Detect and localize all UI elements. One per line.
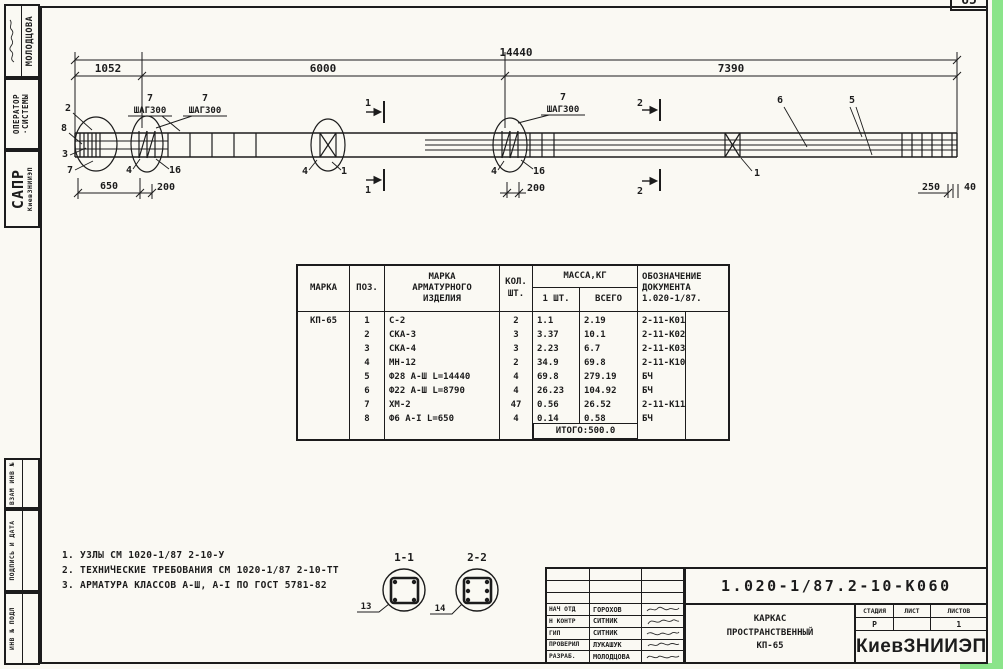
callout-leaders <box>128 115 585 131</box>
signature-squiggle <box>646 652 680 661</box>
col-item: С-2СКА-3 СКА-4МН-12 Ф28 А-Ш L=14440Ф22 А… <box>385 312 500 439</box>
people-row: ГИП СИТНИК <box>547 628 684 640</box>
cut-2-bottom: 2 <box>637 186 643 197</box>
stage-sheet-values: Р 1 <box>856 618 987 631</box>
left-end-stirrups <box>80 131 256 158</box>
col-item-header: МАРКА АРМАТУРНОГО ИЗДЕЛИЯ <box>385 266 500 311</box>
sapr-text: САПР <box>10 169 27 209</box>
qty-header-2: ШТ. <box>508 289 524 300</box>
signature-squiggle <box>646 640 680 649</box>
people-row: НАЧ ОТД ГОРОХОВ <box>547 604 684 616</box>
organization-logo: КиевЗНИИЭП <box>856 631 987 662</box>
stage-value: Р <box>856 618 894 630</box>
col-mass-header: МАССА,КГ 1 ШТ. ВСЕГО <box>533 266 638 311</box>
mass-one-header: 1 ШТ. <box>533 288 580 311</box>
pos-4b: 4 <box>302 166 308 177</box>
callout1-step: ШАГ300 <box>134 106 167 116</box>
dim-seg3: 7390 <box>718 62 745 75</box>
mid-splice-mark <box>311 119 345 171</box>
item-header-3: ИЗДЕЛИЯ <box>423 294 461 305</box>
note-line-1: 1. УЗЛЫ СМ 1020-1/87 2-10-У <box>62 548 407 563</box>
note-line-2: 2. ТЕХНИЧЕСКИЕ ТРЕБОВАНИЯ СМ 1020-1/87 2… <box>62 563 407 578</box>
dim-650: 650 <box>100 181 118 192</box>
operator-label: ОПЕРАТОР ·СИСТЕМЫ <box>4 78 40 150</box>
sheet-value <box>894 618 931 630</box>
dim-250: 250 <box>922 182 940 193</box>
section-2-2-title: 2-2 <box>467 551 487 564</box>
people-row: РАЗРАБ. МОЛОДЦОВА <box>547 651 684 662</box>
col-doc: 2-11-К012-11-К02 2-11-К032-11-К10 БЧБЧ 2… <box>638 312 686 439</box>
signature-squiggle <box>646 629 680 638</box>
sapr-label: САПР КиевЗНИИЭП <box>4 150 40 228</box>
drawing-title-line3: КП-65 <box>756 640 783 654</box>
scan-green-edge-right <box>992 0 1003 669</box>
stamp-inv-divider <box>22 594 23 663</box>
col-doc-header: ОБОЗНАЧЕНИЕ ДОКУМЕНТА 1.020-1/87. <box>638 266 728 311</box>
spec-table: МАРКА ПОЗ. МАРКА АРМАТУРНОГО ИЗДЕЛИЯ КОЛ… <box>296 264 730 441</box>
pos-8: 8 <box>61 123 67 134</box>
stamp-podpis-divider <box>22 511 23 590</box>
operator-line2: ·СИСТЕМЫ <box>22 94 31 134</box>
pos-16b: 16 <box>533 166 545 177</box>
podpis-label: ПОДПИСЬ И ДАТА <box>4 509 21 592</box>
drawing-title-line1: КАРКАС <box>754 613 787 627</box>
callout1-pos: 7 <box>147 93 153 104</box>
col-mass-one: 1.13.37 2.2334.9 69.826.23 0.560.14 <box>533 312 580 439</box>
dim-40: 40 <box>964 182 976 193</box>
document-number: 1.020-1/87.2-10-К060 <box>686 569 987 605</box>
pos-6: 6 <box>777 95 783 106</box>
sheets-value: 1 <box>931 618 987 630</box>
col-marka: КП-65 <box>298 312 350 439</box>
pos-1b: 1 <box>754 168 760 179</box>
col-poz-header: ПОЗ. <box>350 266 385 311</box>
pos-4c: 4 <box>491 166 497 177</box>
callout3-step: ШАГ300 <box>547 105 580 115</box>
signature-cell <box>642 604 684 615</box>
people-row: ПРОВЕРИЛ ЛУКАШУК <box>547 640 684 652</box>
pos-2: 2 <box>65 103 71 114</box>
signature-squiggle <box>7 19 17 63</box>
dim-seg1: 1052 <box>95 62 122 75</box>
inv-label: ИНВ № ПОДЛ <box>4 592 21 665</box>
signature-cell <box>642 628 684 639</box>
people-row: Н КОНТР СИТНИК <box>547 616 684 628</box>
col-mass-all: 2.1910.1 6.769.8 279.19104.92 26.520.58 <box>580 312 638 439</box>
pos-3: 3 <box>62 149 68 160</box>
signature-cell <box>642 640 684 651</box>
signature-cell <box>642 651 684 662</box>
section-1-1-ref: 13 <box>361 602 372 612</box>
title-block: НАЧ ОТД ГОРОХОВ Н КОНТР СИТНИК ГИП СИТНИ… <box>545 567 988 664</box>
item-header-1: МАРКА <box>428 272 455 283</box>
note-line-3: 3. АРМАТУРА КЛАССОВ А-Ш, А-I ПО ГОСТ 578… <box>62 578 407 593</box>
col-marka-header: МАРКА <box>298 266 350 311</box>
cut-1-bottom: 1 <box>365 185 371 196</box>
notes: 1. УЗЛЫ СМ 1020-1/87 2-10-У 2. ТЕХНИЧЕСК… <box>62 548 407 593</box>
stage-sheet-headers: СТАДИЯ ЛИСТ ЛИСТОВ <box>856 605 987 618</box>
dim-overall: 14440 <box>499 46 532 59</box>
table-total: ИТОГО:500.0 <box>533 423 638 439</box>
doc-header-2: ДОКУМЕНТА <box>642 283 691 294</box>
callout3-pos: 7 <box>560 92 566 103</box>
pos-16a: 16 <box>169 165 181 176</box>
signature-squiggle <box>646 617 680 626</box>
callout2-step: ШАГ300 <box>189 106 222 116</box>
doc-header-3: 1.020-1/87. <box>642 294 702 305</box>
cut-2-top: 2 <box>637 98 643 109</box>
section-detail-2-2: 2-2 14 <box>430 551 498 614</box>
qty-header-1: КОЛ. <box>505 277 527 288</box>
drawing-title-line2: ПРОСТРАНСТВЕННЫЙ <box>727 627 814 641</box>
author-name-vertical: МОЛОДЦОВА <box>19 4 40 78</box>
dim-200-mid: 200 <box>527 183 545 194</box>
col-qty: 23 32 44 474 <box>500 312 533 439</box>
item-header-2: АРМАТУРНОГО <box>412 283 472 294</box>
title-block-people: НАЧ ОТД ГОРОХОВ Н КОНТР СИТНИК ГИП СИТНИ… <box>547 569 686 662</box>
spec-table-header: МАРКА ПОЗ. МАРКА АРМАТУРНОГО ИЗДЕЛИЯ КОЛ… <box>298 266 728 312</box>
pos-5: 5 <box>849 95 855 106</box>
section-2-2-ref: 14 <box>435 604 446 614</box>
marka-value: КП-65 <box>298 314 349 328</box>
signature-cell <box>642 616 684 627</box>
mass-header: МАССА,КГ <box>533 266 637 288</box>
callout2-pos: 7 <box>202 93 208 104</box>
sapr-org-text: КиевЗНИИЭП <box>27 167 34 211</box>
stamp-vzam-divider <box>22 460 23 507</box>
dim-seg2: 6000 <box>310 62 337 75</box>
col-qty-header: КОЛ. ШТ. <box>500 266 533 311</box>
signature-squiggle <box>646 605 680 614</box>
mass-all-header: ВСЕГО <box>580 288 637 311</box>
doc-header-1: ОБОЗНАЧЕНИЕ <box>642 272 702 283</box>
col-poz: 12 34 56 78 <box>350 312 385 439</box>
drawing-title: КАРКАС ПРОСТРАНСТВЕННЫЙ КП-65 <box>686 605 856 662</box>
small-dimensions <box>74 178 958 199</box>
spec-table-body: КП-65 12 34 56 78 С-2СКА-3 СКА-4МН-12 Ф2… <box>298 312 728 439</box>
dim-200-left: 200 <box>157 182 175 193</box>
vzam-label: ВЗАМ ИНВ № <box>4 458 21 509</box>
pos-1a: 1 <box>341 166 347 177</box>
drawing-sheet: { "page": { "corner_number": "65" }, "si… <box>0 0 1003 669</box>
pos-4a: 4 <box>126 165 132 176</box>
author-signature <box>4 4 20 78</box>
cut-1-top: 1 <box>365 98 371 109</box>
pos-7: 7 <box>67 165 73 176</box>
